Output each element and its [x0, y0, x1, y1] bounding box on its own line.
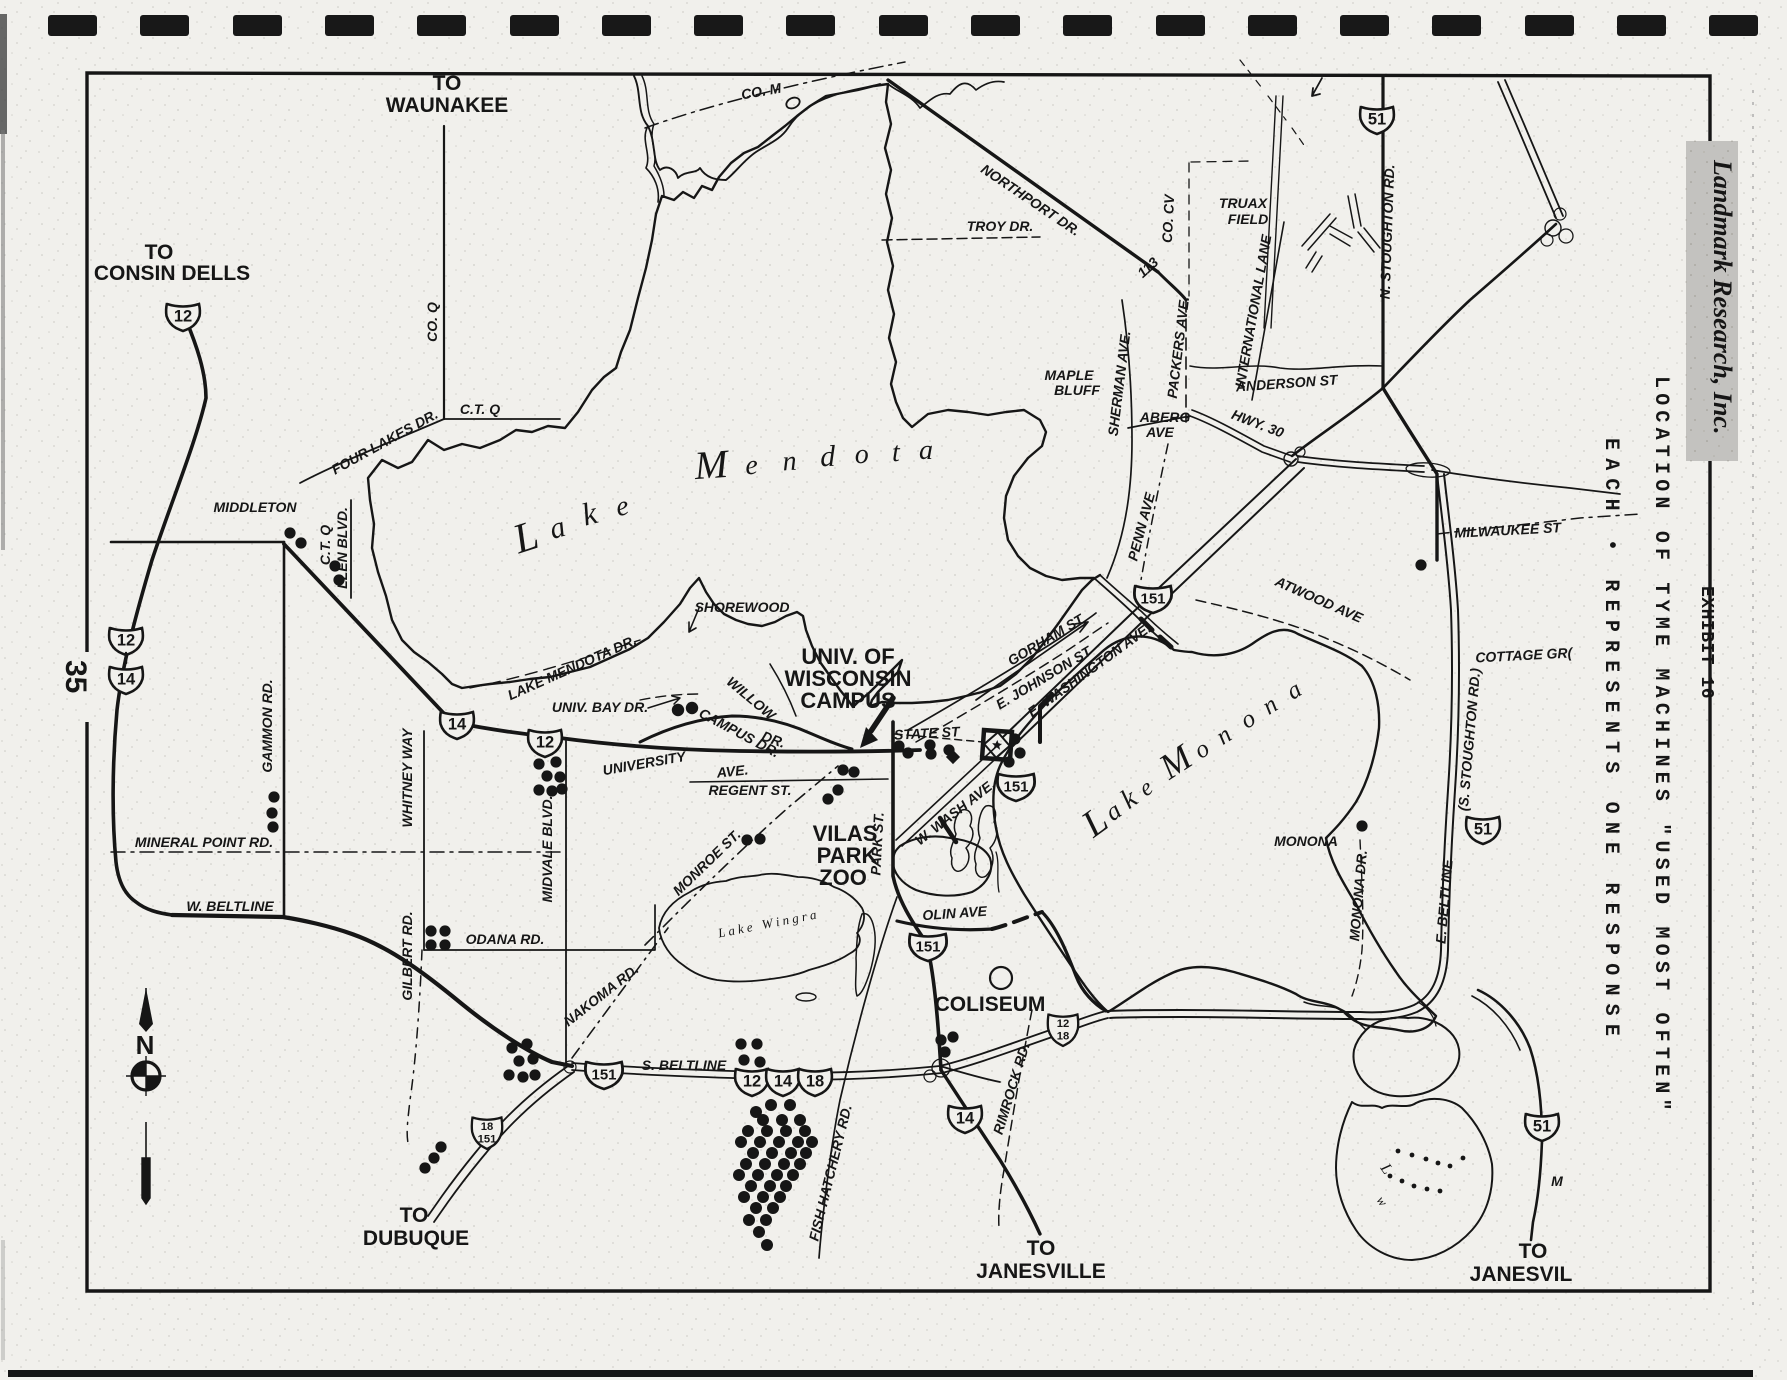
svg-text:LLEN BLVD.: LLEN BLVD.	[334, 507, 350, 589]
svg-text:151: 151	[915, 939, 940, 956]
svg-text:MONONA: MONONA	[1274, 833, 1338, 849]
svg-text:TO: TO	[145, 241, 174, 264]
svg-text:C.T. Q: C.T. Q	[460, 401, 500, 417]
svg-text:TRUAX: TRUAX	[1219, 195, 1269, 211]
svg-text:12: 12	[174, 308, 192, 326]
svg-text:MIDDLETON: MIDDLETON	[214, 499, 298, 515]
svg-text:REGENT ST.: REGENT ST.	[709, 782, 792, 798]
svg-text:14: 14	[448, 716, 467, 734]
svg-text:COLISEUM: COLISEUM	[935, 993, 1046, 1016]
svg-text:a: a	[919, 435, 933, 466]
svg-text:CONSIN DELLS: CONSIN DELLS	[94, 262, 250, 285]
svg-text:GAMMON RD.: GAMMON RD.	[259, 679, 275, 772]
svg-text:12: 12	[1057, 1018, 1070, 1030]
svg-text:M: M	[692, 441, 732, 488]
svg-text:n: n	[782, 446, 798, 478]
svg-text:BLUFF: BLUFF	[1054, 382, 1100, 398]
svg-text:14: 14	[774, 1073, 793, 1091]
svg-text:MAPLE: MAPLE	[1045, 367, 1095, 383]
svg-text:51: 51	[1533, 1118, 1551, 1136]
svg-text:PARK ST.: PARK ST.	[867, 812, 886, 876]
svg-text:51: 51	[1368, 111, 1386, 129]
svg-text:AVE: AVE	[1145, 424, 1174, 440]
svg-text:TO: TO	[1027, 1237, 1056, 1260]
svg-text:TO: TO	[400, 1204, 429, 1227]
svg-text:ZOO: ZOO	[819, 865, 867, 890]
svg-text:e: e	[745, 450, 759, 482]
svg-text:151: 151	[478, 1134, 497, 1146]
svg-text:UNIV. BAY DR.: UNIV. BAY DR.	[552, 699, 648, 715]
svg-text:12: 12	[117, 632, 135, 650]
svg-text:MIDVALE BLVD.: MIDVALE BLVD.	[539, 795, 555, 902]
svg-text:CO. Q: CO. Q	[424, 302, 440, 342]
svg-text:d: d	[820, 440, 837, 474]
svg-text:MINERAL POINT RD.: MINERAL POINT RD.	[135, 834, 273, 850]
svg-text:151: 151	[1003, 779, 1028, 796]
svg-text:14: 14	[117, 671, 136, 689]
svg-text:ABERG: ABERG	[1139, 409, 1191, 425]
svg-text:CAMPUS: CAMPUS	[800, 688, 895, 713]
svg-text:DUBUQUE: DUBUQUE	[363, 1227, 469, 1250]
svg-text:N: N	[136, 1030, 155, 1060]
svg-text:18: 18	[1057, 1031, 1070, 1043]
svg-text:151: 151	[591, 1067, 616, 1084]
svg-text:EXHIBIT 16: EXHIBIT 16	[1696, 586, 1716, 699]
svg-text:35: 35	[59, 660, 92, 693]
svg-text:EACH • REPRESENTS ONE RESPONSE: EACH • REPRESENTS ONE RESPONSE	[1599, 438, 1622, 1044]
svg-text:WHITNEY WAY: WHITNEY WAY	[399, 727, 415, 828]
svg-text:TROY DR.: TROY DR.	[967, 218, 1034, 234]
svg-text:W. BELTLINE: W. BELTLINE	[186, 898, 274, 914]
svg-text:12: 12	[536, 734, 554, 752]
svg-text:WAUNAKEE: WAUNAKEE	[386, 94, 509, 117]
svg-text:M: M	[1551, 1173, 1563, 1189]
svg-text:S. BELTLINE: S. BELTLINE	[642, 1057, 727, 1073]
svg-text:CO. CV: CO. CV	[1159, 193, 1178, 244]
svg-text:GILBERT RD.: GILBERT RD.	[399, 911, 415, 1000]
svg-text:151: 151	[1140, 591, 1165, 608]
svg-text:FIELD: FIELD	[1228, 211, 1268, 227]
svg-text:TO: TO	[1519, 1240, 1548, 1263]
svg-text:18: 18	[481, 1121, 494, 1133]
svg-text:12: 12	[743, 1073, 761, 1091]
svg-text:51: 51	[1474, 821, 1492, 839]
svg-text:18: 18	[806, 1073, 824, 1091]
svg-text:JANESVILLE: JANESVILLE	[976, 1260, 1106, 1283]
svg-text:o: o	[854, 439, 869, 470]
svg-text:ODANA RD.: ODANA RD.	[466, 931, 545, 947]
svg-text:TO: TO	[433, 72, 462, 95]
svg-text:14: 14	[956, 1110, 975, 1128]
svg-text:LOCATION OF TYME MACHINES "USE: LOCATION OF TYME MACHINES "USED MOST OFT…	[1649, 376, 1672, 1116]
svg-text:AVE.: AVE.	[715, 761, 749, 780]
svg-text:C.T. Q: C.T. Q	[317, 525, 333, 565]
svg-text:Landmark Research, Inc.: Landmark Research, Inc.	[1708, 159, 1737, 434]
svg-text:JANESVIL: JANESVIL	[1470, 1263, 1573, 1286]
svg-text:SHOREWOOD: SHOREWOOD	[695, 599, 790, 615]
